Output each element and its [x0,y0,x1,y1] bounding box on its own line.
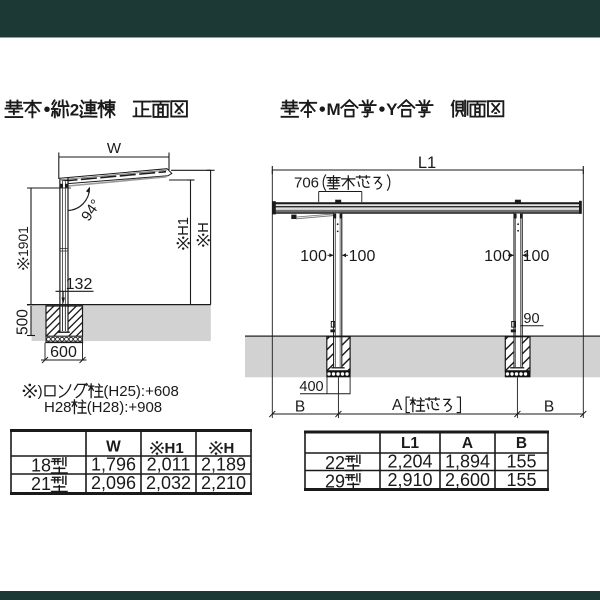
svg-text:400: 400 [299,379,323,395]
svg-text:M: M [327,100,341,119]
svg-text:A: A [462,435,473,452]
svg-text:B: B [295,399,305,416]
svg-text:1,894: 1,894 [445,452,490,472]
svg-text:H28: H28 [44,399,72,416]
svg-text:1,796: 1,796 [91,455,136,475]
svg-text:706: 706 [294,175,319,192]
svg-text:A: A [392,397,403,414]
svg-text:1901: 1901 [16,226,31,257]
svg-text:155: 155 [506,470,536,490]
svg-text:500: 500 [14,309,31,335]
svg-text:2,096: 2,096 [91,473,136,493]
svg-text:B: B [516,435,527,452]
svg-text:100: 100 [484,248,511,265]
svg-text:18: 18 [31,456,51,476]
svg-text:90: 90 [523,311,539,327]
svg-text:132: 132 [66,276,93,293]
svg-text:21: 21 [31,474,51,494]
svg-text:): ) [38,383,43,400]
svg-text:W: W [107,140,122,157]
svg-text:L1: L1 [401,435,419,452]
svg-text:29: 29 [325,472,345,492]
svg-text:2,011: 2,011 [147,455,191,475]
svg-text:(H28):+908: (H28):+908 [87,399,162,416]
svg-text:B: B [544,399,554,416]
svg-text:2,204: 2,204 [387,452,432,472]
svg-text:100: 100 [349,248,376,265]
svg-text:L1: L1 [418,154,436,172]
svg-text:155: 155 [506,452,536,472]
svg-text:22: 22 [325,453,345,473]
svg-text:2: 2 [70,100,79,119]
svg-text:2,210: 2,210 [201,473,246,493]
svg-text:100: 100 [523,248,550,265]
svg-text:2,600: 2,600 [445,470,490,490]
svg-text:H1: H1 [176,217,192,236]
svg-text:2,910: 2,910 [387,470,432,490]
svg-text:100: 100 [300,248,327,265]
svg-text:Y: Y [386,100,398,119]
svg-text:H: H [196,222,212,233]
svg-text:2,032: 2,032 [146,473,191,493]
svg-text:W: W [106,439,121,456]
svg-text:2,189: 2,189 [201,455,246,475]
svg-text:600: 600 [50,344,77,361]
svg-text:(H25):+608: (H25):+608 [103,383,178,400]
